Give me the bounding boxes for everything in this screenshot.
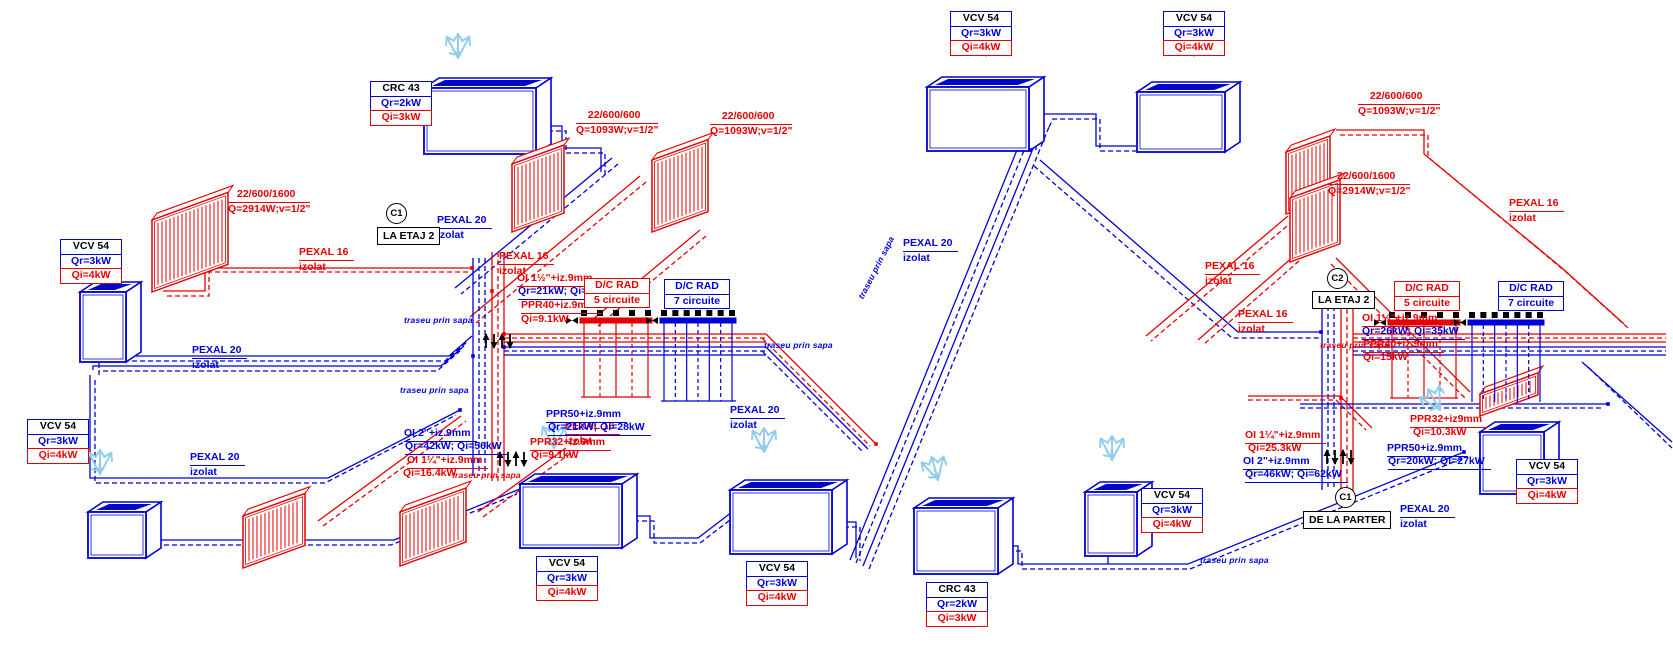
pipe-label: PEXAL 16izolat [1205,260,1260,288]
pipe-label-line: Qi=16.4kW [403,467,456,481]
note-label: traseu prin sapa [452,470,521,480]
pipe-label: Qr=20kW; Qi=27kW [1388,455,1491,470]
unit-label-qr: Qr=2kW [926,597,988,613]
pipe-line [1340,135,1628,328]
pipe-label-line: izolat [1400,518,1455,532]
pipe-label: 22/600/600Q=1093W;v=1/2" [710,110,792,138]
pipe-label: PEXAL 20izolat [903,237,958,265]
dc-rad-label-line: D/C RAD [664,279,730,295]
dc-rad-label-line: 5 circuite [1394,296,1460,312]
junction-dot [471,354,475,358]
junction-dot [502,345,506,349]
note-label: traseu prin sapa [400,385,469,395]
pipe-label-line: Q=2914W;v=1/2" [228,203,310,217]
unit-label-title: VCV 54 [1141,488,1203,504]
pipe-label-line: izolat [190,466,245,480]
airflow-arrows-icon [917,453,954,486]
pipe-label-line: traseu prin sapa [764,340,833,350]
unit-label-qr: Qr=3kW [27,434,89,450]
dc-rad-label: D/C RAD7 circuite [1498,282,1564,311]
dc-rad-label-line: D/C RAD [1394,281,1460,297]
pipe-label-line: PEXAL 16 [499,250,554,265]
dc-rad-label: D/C RAD5 circuite [584,279,650,308]
unit-label-title: VCV 54 [60,239,122,255]
pipe-label-line: PEXAL 20 [190,451,245,466]
unit-label-title: VCV 54 [27,419,89,435]
node-caption: DE LA PARTER [1303,511,1391,529]
pipe-label-line: Q=2914W;v=1/2" [1328,185,1410,199]
pipe-label-line: Qr=46kW; Qi=62kW [1245,468,1348,483]
pipe-line [99,351,460,375]
pipe-line [93,346,464,370]
pipe-label: 22/600/1600Q=2914W;v=1/2" [228,188,310,216]
pipe-label: PEXAL 20izolat [1400,503,1455,531]
pipe-label-line: Qr=20kW; Qi=27kW [1388,455,1491,470]
pipe-label: Qi=9.1kW [531,449,579,463]
unit-label-qr: Qr=3kW [1516,474,1578,490]
pipe-line [167,272,470,296]
pipe-label-line: Qr=42kW; Qi=56kW [405,440,508,455]
pipe-label: PEXAL 20izolat [437,214,492,242]
note-label: traseu prin sapa [404,315,473,325]
fan-coil-unit [1137,82,1240,152]
note-label: traseu prin sapa [1200,555,1269,565]
unit-label-qr: Qr=2kW [370,96,432,112]
pipe-label: PEXAL 16izolat [1509,197,1564,225]
fan-coil-unit [88,502,161,558]
dc-rad-label: D/C RAD7 circuite [664,280,730,309]
pipe-line [99,341,468,368]
pipe-label-line: 22/600/1600 [1328,170,1410,185]
pipe-label-line: PEXAL 20 [903,237,958,252]
unit-label-qi: Qi=4kW [536,585,598,601]
pipe-label-line: izolat [437,229,492,243]
pipe-label-line: 22/600/1600 [228,188,310,203]
unit-label-qi: Qi=4kW [60,268,122,284]
pipe-label-line: traseu prin sapa [1200,555,1269,565]
pipe-line [93,336,472,363]
dc-rad-label-line: 7 circuite [1498,296,1564,312]
fan-coil-unit [520,474,637,548]
pipe-label-line: izolat [299,261,354,275]
pipe-label-line: PEXAL 16 [1238,308,1293,323]
unit-label-qi: Qi=3kW [926,611,988,627]
pipe-label-line: izolat [192,359,247,373]
pipe-label-line: Qr=21kW; Qi=28kW [548,421,651,436]
fan-coil-unit [927,77,1044,151]
unit-label-title: VCV 54 [746,561,808,577]
junction-dot [1339,396,1343,400]
pipe-label-line: izolat [903,252,958,266]
unit-label-title: VCV 54 [1516,459,1578,475]
radiator [400,481,471,566]
junction-dot [458,408,462,412]
node-circle: C1 [1335,487,1356,508]
pipe-label-line: traseu prin sapa [1320,340,1389,350]
junction-dot [1606,402,1610,406]
pipe-label: Qi=16.4kW [403,467,456,481]
unit-label-qi: Qi=4kW [1141,517,1203,533]
pipe-label-line: traseu prin sapa [404,315,473,325]
pipe-label-line: PEXAL 16 [299,246,354,261]
dc-rad-label-line: D/C RAD [584,278,650,294]
pipe-line [1000,457,1466,569]
note-label: traseu prin sapa [764,340,833,350]
pipe-label: Qi=15kW [1363,351,1408,365]
dc-rad-label: D/C RAD5 circuite [1394,282,1460,311]
pipe-label: PEXAL 16izolat [299,246,354,274]
pipe-label-line: 22/600/600 [710,110,792,125]
radiator [652,133,713,232]
dc-rad-label-line: D/C RAD [1498,281,1564,297]
unit-label-title: VCV 54 [950,11,1012,27]
pipe-label: Qi=25.3kW [1248,442,1301,456]
unit-label-qr: Qr=3kW [1141,503,1203,519]
fan-coil-unit [80,282,141,362]
pipe-line [856,121,1036,563]
airflow-arrows-icon [1096,436,1127,462]
pipe-label-line: izolat [1238,323,1293,337]
pipe-label: Qr=46kW; Qi=62kW [1245,468,1348,483]
pipe-line [626,517,734,543]
fan-coil-unit [914,498,1013,574]
unit-label-box: VCV 54Qr=3kWQi=4kW [1516,460,1578,504]
unit-label-box: VCV 54Qr=3kWQi=4kW [1163,12,1225,56]
node-circle: C2 [1327,268,1348,289]
pipe-label-line: 22/600/600 [1358,90,1440,105]
junction-dot [874,442,878,446]
manifold [566,310,652,397]
unit-label-box: VCV 54Qr=3kWQi=4kW [27,420,89,464]
pipe-label: PEXAL 20izolat [192,344,247,372]
pipe-label-line: Qi=9.1kW [531,449,579,463]
pipe-label: 22/600/600Q=1093W;v=1/2" [1358,90,1440,118]
node-caption: LA ETAJ 2 [1312,291,1375,309]
unit-label-qi: Qi=4kW [1516,488,1578,504]
pipe-line [762,351,862,451]
junction-dot [1028,148,1032,152]
pipe-label-line: izolat [1205,275,1260,289]
pipe-line [622,512,732,538]
unit-label-qr: Qr=3kW [1163,26,1225,42]
unit-label-title: CRC 43 [926,582,988,598]
unit-label-box: CRC 43Qr=2kWQi=3kW [926,583,988,627]
pipe-label-line: izolat [1509,212,1564,226]
unit-label-title: VCV 54 [1163,11,1225,27]
unit-label-qr: Qr=3kW [950,26,1012,42]
pipe-label: 22/600/1600Q=2914W;v=1/2" [1328,170,1410,198]
unit-label-box: VCV 54Qr=3kWQi=4kW [60,240,122,284]
pipe-label: PEXAL 20izolat [190,451,245,479]
pipe-label-line: PEXAL 16 [1509,197,1564,212]
node-caption: LA ETAJ 2 [377,227,440,245]
fan-coil-unit [424,78,551,154]
pipe-label-line: traseu prin sapa [400,385,469,395]
radiator [243,487,310,568]
pipe-line [850,118,1030,560]
unit-label-box: VCV 54Qr=3kWQi=4kW [1141,489,1203,533]
pipe-label-line: Q=1093W;v=1/2" [1358,105,1440,119]
unit-label-qr: Qr=3kW [536,571,598,587]
pipe-label-line: Qi=15kW [1363,351,1408,365]
pipe-label-line: izolat [730,419,785,433]
pipe-label-line: PEXAL 20 [1400,503,1455,518]
note-label: traseu prin sapa [1320,340,1389,350]
junction-dot [490,289,494,293]
unit-label-qr: Qr=3kW [60,254,122,270]
pipe-label-line: PEXAL 16 [1205,260,1260,275]
pipe-label-line: Q=1093W;v=1/2" [576,124,658,138]
dc-rad-label-line: 7 circuite [664,294,730,310]
pipe-label-line: Q=1093W;v=1/2" [710,125,792,139]
pipe-label-line: PEXAL 20 [192,344,247,359]
pipe-label: 22/600/600Q=1093W;v=1/2" [576,109,658,137]
unit-label-qi: Qi=4kW [27,448,89,464]
junction-dot [470,266,474,270]
unit-label-qi: Qi=4kW [950,40,1012,56]
unit-label-box: VCV 54Qr=3kWQi=4kW [746,562,808,606]
node-circle: C1 [386,203,407,224]
pipe-label: Qi=10.3kW [1413,426,1466,440]
unit-label-box: VCV 54Qr=3kWQi=4kW [950,12,1012,56]
pipe-label: Qi=9.1kW [521,313,569,327]
airflow-arrows-icon [442,34,473,60]
unit-label-qi: Qi=3kW [370,110,432,126]
pipe-label-line: 22/600/600 [576,109,658,124]
unit-label-title: VCV 54 [536,556,598,572]
unit-label-qi: Qi=4kW [1163,40,1225,56]
pipe-label: Qr=42kW; Qi=56kW [405,440,508,455]
unit-label-qi: Qi=4kW [746,590,808,606]
pipe-line [1336,130,1624,324]
junction-dot [1319,330,1323,334]
pipe-label-line: PEXAL 20 [437,214,492,229]
diagram-canvas: 22/600/600Q=1093W;v=1/2"22/600/600Q=1093… [0,0,1673,665]
pipe-label-line: PEXAL 20 [730,404,785,419]
pipe-label: Qr=21kW; Qi=28kW [548,421,651,436]
pipe-label-line: traseu prin sapa [452,470,521,480]
pipe-line [766,347,868,449]
fan-coil-unit [730,480,847,554]
junction-dot [502,332,506,336]
pipe-label: PEXAL 20izolat [730,404,785,432]
unit-label-box: CRC 43Qr=2kWQi=3kW [370,82,432,126]
pipe-label-line: Qi=9.1kW [521,313,569,327]
pipe-label: PEXAL 16izolat [1238,308,1293,336]
unit-label-qr: Qr=3kW [746,576,808,592]
radiator [152,186,233,292]
unit-label-box: VCV 54Qr=3kWQi=4kW [536,557,598,601]
pipe-label-line: Qi=10.3kW [1413,426,1466,440]
dc-rad-label-line: 5 circuite [584,293,650,309]
pipe-label-line: Qi=25.3kW [1248,442,1301,456]
unit-label-title: CRC 43 [370,81,432,97]
